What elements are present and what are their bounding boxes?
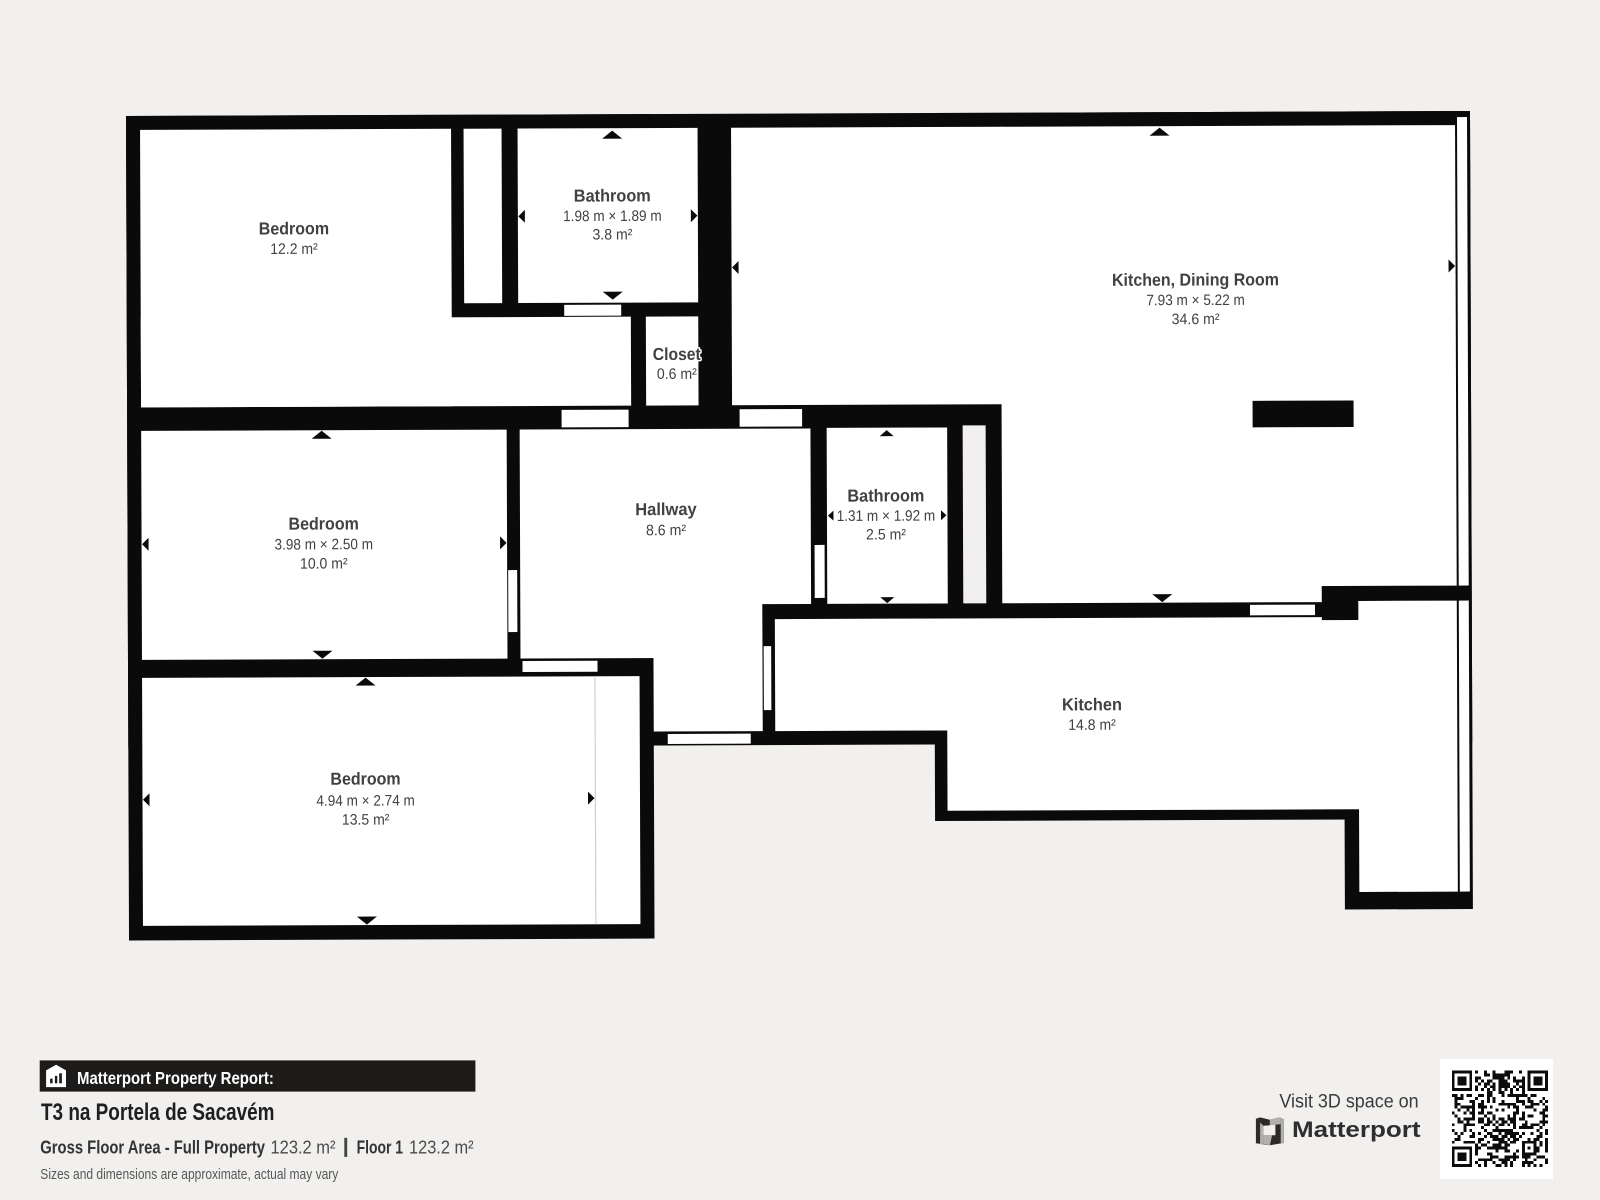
svg-text:10.0 m²: 10.0 m² (300, 555, 348, 572)
svg-text:Matterport: Matterport (1292, 1117, 1421, 1142)
svg-text:123.2 m²: 123.2 m² (409, 1137, 474, 1157)
svg-text:Closet: Closet (653, 344, 701, 364)
svg-text:1.98 m × 1.89 m: 1.98 m × 1.89 m (563, 208, 662, 225)
svg-text:Bedroom: Bedroom (259, 218, 329, 238)
svg-text:Visit 3D space on: Visit 3D space on (1279, 1092, 1418, 1113)
svg-text:8.6 m²: 8.6 m² (646, 522, 686, 539)
svg-text:13.5 m²: 13.5 m² (342, 812, 390, 829)
svg-text:7.93 m × 5.22 m: 7.93 m × 5.22 m (1146, 292, 1245, 309)
svg-text:Matterport Property Report:: Matterport Property Report: (77, 1068, 274, 1088)
svg-text:Hallway: Hallway (635, 499, 697, 519)
svg-text:Kitchen, Dining Room: Kitchen, Dining Room (1112, 269, 1279, 290)
svg-text:Kitchen: Kitchen (1062, 694, 1122, 714)
svg-text:Bathroom: Bathroom (847, 485, 924, 505)
svg-text:Sizes and dimensions are appro: Sizes and dimensions are approximate, ac… (40, 1166, 338, 1183)
svg-text:3.98 m × 2.50 m: 3.98 m × 2.50 m (274, 536, 373, 553)
svg-text:4.94 m × 2.74 m: 4.94 m × 2.74 m (316, 792, 415, 809)
svg-text:34.6 m²: 34.6 m² (1172, 311, 1220, 328)
svg-text:Bedroom: Bedroom (330, 768, 400, 788)
svg-text:12.2 m²: 12.2 m² (270, 241, 318, 258)
svg-text:1.31 m × 1.92 m: 1.31 m × 1.92 m (837, 508, 936, 525)
svg-text:123.2 m²: 123.2 m² (271, 1137, 336, 1157)
svg-text:2.5 m²: 2.5 m² (866, 526, 906, 543)
svg-text:Floor 1: Floor 1 (357, 1137, 403, 1157)
svg-text:Gross Floor Area - Full Proper: Gross Floor Area - Full Property (40, 1137, 265, 1157)
svg-text:Bedroom: Bedroom (289, 513, 359, 533)
svg-text:3.8 m²: 3.8 m² (592, 226, 632, 243)
svg-text:0.6 m²: 0.6 m² (657, 366, 697, 383)
svg-text:14.8 m²: 14.8 m² (1068, 717, 1116, 734)
svg-text:Bathroom: Bathroom (574, 185, 651, 205)
svg-text:T3 na Portela de Sacavém: T3 na Portela de Sacavém (41, 1100, 275, 1126)
